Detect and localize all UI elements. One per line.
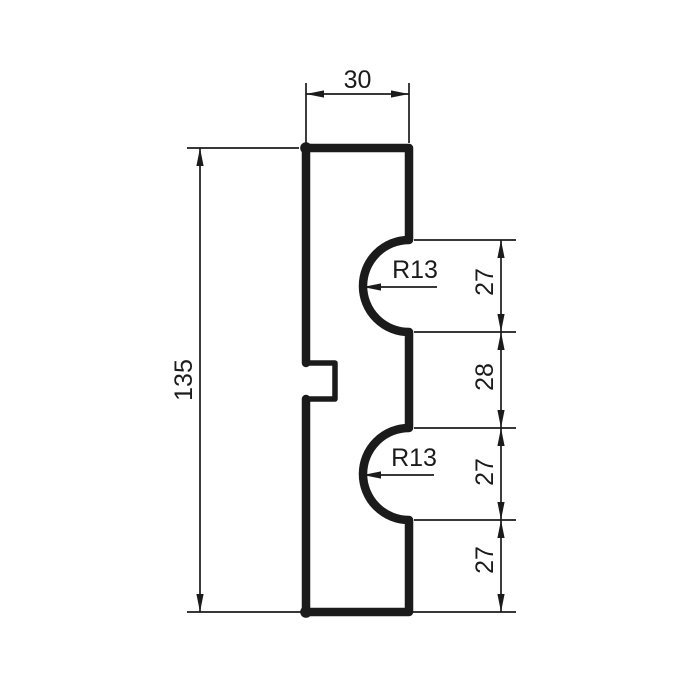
radius-label-upper: R13 <box>392 256 438 284</box>
arrowhead-down <box>196 594 203 612</box>
dim-label-seg3: 27 <box>471 458 499 486</box>
profile-outline <box>306 148 409 612</box>
radius-label-lower: R13 <box>391 444 437 472</box>
arrowhead-seg3-up <box>497 428 504 446</box>
arrowhead-seg3-down <box>497 502 504 520</box>
corner-dot-top-left <box>300 142 312 154</box>
dim-label-seg1: 27 <box>471 268 499 296</box>
arrowhead-seg4-up <box>497 520 504 538</box>
dim-label-top-width: 30 <box>344 66 372 94</box>
dim-label-total-height: 135 <box>170 359 198 401</box>
drawing-canvas: 30 135 27 28 27 <box>0 0 686 686</box>
dim-right-chain: 27 28 27 27 <box>414 240 516 612</box>
technical-drawing: 30 135 27 28 27 <box>0 0 686 686</box>
arrowhead-right <box>391 90 409 97</box>
arrowhead-seg4-down <box>497 594 504 612</box>
profile-left-groove <box>306 363 335 399</box>
dim-top-width: 30 <box>306 66 409 143</box>
dim-label-seg2: 28 <box>471 363 499 391</box>
arrowhead-seg1-down <box>497 314 504 332</box>
arrowhead-seg2-up <box>497 332 504 350</box>
dim-left-height: 135 <box>170 148 516 612</box>
profile <box>300 142 409 618</box>
arrowhead-left <box>306 90 324 97</box>
arrowhead-seg2-down <box>497 410 504 428</box>
dim-label-seg4: 27 <box>471 546 499 574</box>
arrowhead-seg1-up <box>497 240 504 258</box>
arrowhead-up <box>196 148 203 166</box>
